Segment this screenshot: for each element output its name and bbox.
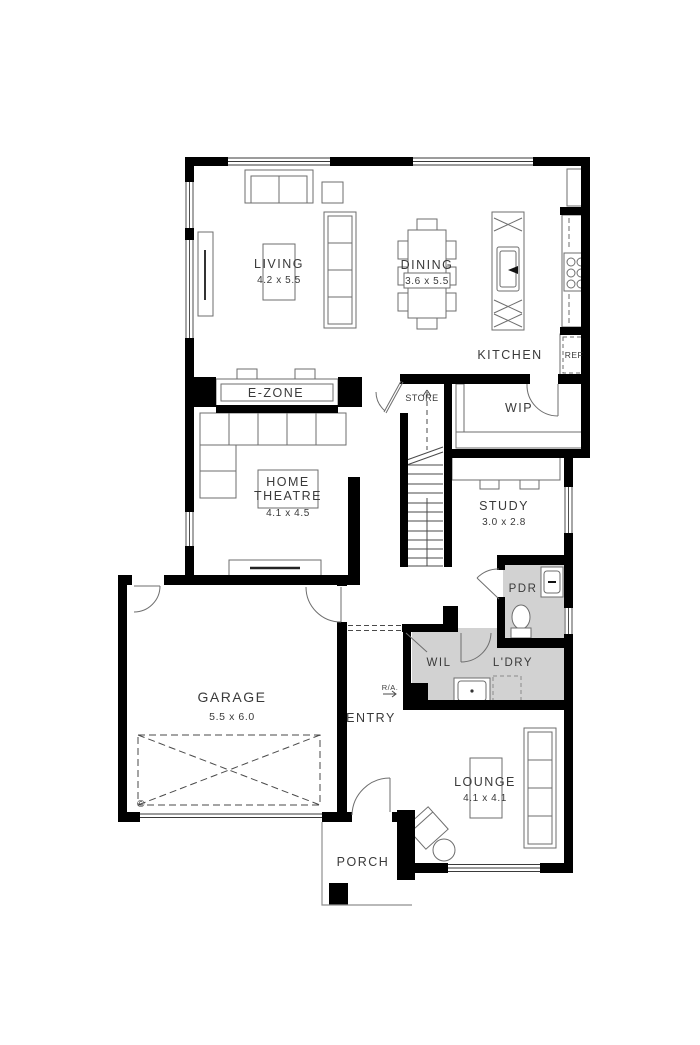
label-ezone: E-ZONE [248, 386, 304, 400]
wall-laundry-lounge [403, 700, 573, 710]
window-living-west-1 [185, 182, 194, 228]
wall-kitchen-south-west [400, 374, 530, 384]
label-garage: GARAGE [198, 689, 267, 705]
wall-bench-pier-south [560, 327, 581, 335]
wall-pdr-south [497, 638, 564, 648]
window-theatre-west [185, 512, 194, 546]
label-pdr: PDR [509, 583, 538, 595]
label-entry: ENTRY [346, 711, 396, 725]
label-study: STUDY [479, 499, 529, 513]
dims-study: 3.0 x 2.8 [482, 517, 526, 528]
wall-laundry-pier [443, 606, 458, 632]
wall-east-lounge [564, 700, 573, 873]
wall-ezone-pier-west [185, 377, 216, 407]
label-home-theatre-2: THEATRE [254, 489, 322, 503]
dims-garage: 5.5 x 6.0 [209, 711, 255, 723]
stairs [404, 390, 443, 566]
wall-east-kitchen [581, 157, 590, 458]
living-sofa [245, 170, 313, 203]
dims-lounge: 4.1 x 4.1 [463, 793, 507, 804]
wall-kitchen-south-east [558, 374, 581, 384]
dims-living: 4.2 x 5.5 [257, 275, 301, 286]
wall-stairs-west [400, 413, 408, 567]
window-living-north [228, 157, 330, 166]
garage-car-space [138, 735, 320, 805]
wall-study-south [497, 555, 564, 565]
floor-plan: LIVING 4.2 x 5.5 DINING 3.6 x 5.5 KITCHE… [0, 0, 700, 1045]
label-porch: PORCH [337, 855, 390, 869]
wall-garage-west [118, 575, 127, 822]
living-second-sofa [324, 212, 356, 328]
label-store: STORE [405, 393, 438, 403]
garage-internal-door [306, 586, 347, 622]
label-kitchen: KITCHEN [477, 348, 542, 362]
kitchen-island [492, 212, 524, 330]
porch-pillar [329, 883, 348, 905]
window-study-east [564, 487, 573, 533]
label-lounge: LOUNGE [454, 775, 516, 789]
furniture [138, 169, 588, 861]
label-living: LIVING [254, 257, 304, 271]
wall-wil-corner [403, 683, 428, 710]
label-ref: REF [565, 350, 584, 360]
window-dining-north [413, 157, 533, 166]
home-theatre-tv-cabinet [229, 560, 321, 577]
front-entry-door [352, 778, 392, 822]
label-return-air: R/A. [382, 683, 399, 692]
study-desk [452, 457, 560, 489]
lounge-sofa [524, 728, 556, 848]
garage-side-door [132, 575, 164, 612]
pdr-door [477, 569, 499, 599]
label-wil: WIL [427, 657, 452, 669]
store-door [376, 381, 403, 413]
entry-bulkhead-dashed [348, 626, 401, 631]
wall-stairs-east [444, 384, 452, 567]
wall-ezone-pier-east [338, 377, 362, 407]
pdr-basin [541, 567, 563, 597]
label-wip: WIP [505, 401, 533, 415]
ezone-chair [237, 369, 257, 379]
dining-table-set [398, 219, 456, 329]
lounge-round-table [433, 839, 455, 861]
dims-home-theatre: 4.1 x 4.5 [266, 508, 310, 519]
copyright-mark: © [137, 799, 145, 810]
dims-dining: 3.6 x 5.5 [405, 276, 449, 287]
floor-plan-drawing: LIVING 4.2 x 5.5 DINING 3.6 x 5.5 KITCHE… [0, 0, 700, 1045]
wip-bench [456, 384, 588, 448]
window-living-west-2 [185, 240, 194, 338]
window-lounge-south [448, 863, 540, 873]
wall-hall-laundry [402, 624, 450, 632]
wall-porch-pier [397, 810, 415, 880]
wall-study-north [444, 449, 565, 458]
toilet [511, 605, 531, 638]
wall-ezone-back [216, 405, 338, 413]
wall-pdr-west [497, 597, 505, 640]
garage-door-opening [140, 812, 322, 822]
label-ldry: L'DRY [493, 657, 533, 669]
wall-bench-pier-north [560, 207, 581, 215]
living-coffee-table [263, 244, 295, 300]
window-pdr-east [564, 608, 573, 634]
ezone-chair [295, 369, 315, 379]
wall-ht-east [348, 477, 360, 583]
living-side-table [322, 182, 343, 203]
label-home-theatre-1: HOME [266, 475, 310, 489]
living-tv-unit [198, 232, 213, 316]
label-dining: DINING [401, 258, 454, 272]
